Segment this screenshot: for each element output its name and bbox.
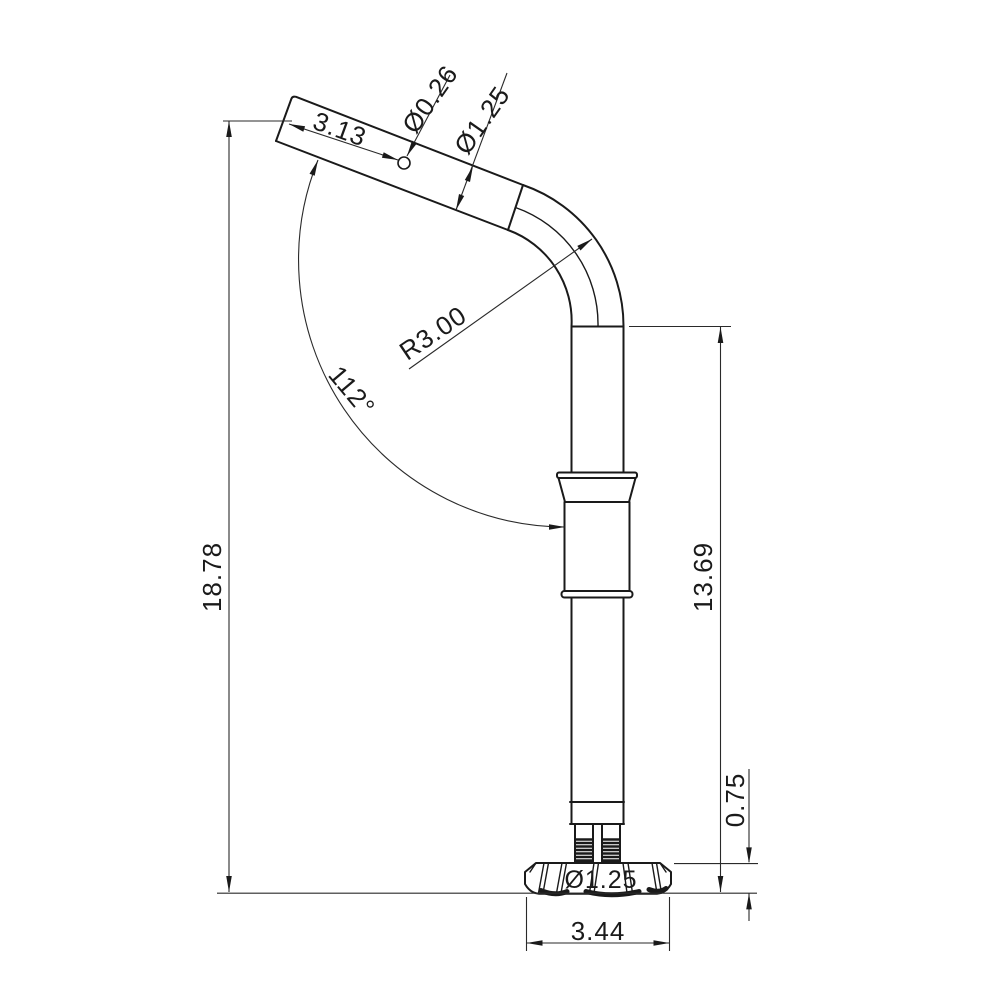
dim-post-height-label: 13.69 bbox=[688, 542, 718, 612]
dim-tube-diameter-label: Ø1.25 bbox=[448, 80, 516, 159]
arrowhead bbox=[527, 940, 543, 946]
arrowhead bbox=[746, 893, 752, 909]
dim-base-width-label: 3.44 bbox=[571, 916, 626, 946]
arrowhead bbox=[718, 876, 724, 892]
dim-hole-diameter-label: Ø0.26 bbox=[396, 59, 464, 138]
arrowhead bbox=[382, 152, 398, 160]
arrowhead bbox=[407, 141, 417, 156]
part-geometry bbox=[276, 97, 671, 895]
arrowhead bbox=[549, 524, 565, 530]
ferrule-taper-right bbox=[629, 478, 636, 502]
bend-outer-arc bbox=[523, 185, 624, 327]
thread-lines-left bbox=[576, 840, 593, 861]
arrowhead bbox=[456, 194, 464, 210]
dim-base-bore-label: Ø1.25 bbox=[564, 866, 637, 894]
dimension-linework bbox=[217, 73, 758, 951]
bend-inner-arc bbox=[508, 230, 572, 327]
thread-lines-right bbox=[603, 840, 620, 861]
ferrule-bottom-lip bbox=[562, 591, 633, 598]
dim-bend-angle-label: 112° bbox=[323, 360, 382, 422]
arrowhead bbox=[718, 327, 724, 343]
arrowhead bbox=[310, 160, 319, 176]
dim-overall-height-label: 18.78 bbox=[197, 542, 227, 612]
ferrule-top-lip bbox=[557, 473, 637, 479]
arrowhead bbox=[465, 166, 473, 182]
arrowhead bbox=[289, 124, 305, 132]
arrowhead bbox=[226, 121, 232, 137]
dim-arm-length-label: 3.13 bbox=[309, 106, 371, 153]
drawing-canvas: 18.78 13.69 0.75 3.44 Ø1.25 3.13 Ø0.26 Ø… bbox=[0, 0, 1000, 1000]
arrowhead bbox=[226, 876, 232, 892]
arrowhead bbox=[577, 239, 592, 251]
ferrule-taper-left bbox=[559, 478, 566, 502]
arrowhead bbox=[746, 847, 752, 863]
dimension-labels: 18.78 13.69 0.75 3.44 Ø1.25 3.13 Ø0.26 Ø… bbox=[197, 59, 750, 946]
hole-profile bbox=[398, 157, 410, 169]
engineering-drawing: 18.78 13.69 0.75 3.44 Ø1.25 3.13 Ø0.26 Ø… bbox=[0, 0, 1000, 1000]
dim-base-thickness-label: 0.75 bbox=[720, 773, 750, 828]
arrowhead bbox=[654, 940, 670, 946]
leader-bend-radius bbox=[409, 239, 592, 369]
